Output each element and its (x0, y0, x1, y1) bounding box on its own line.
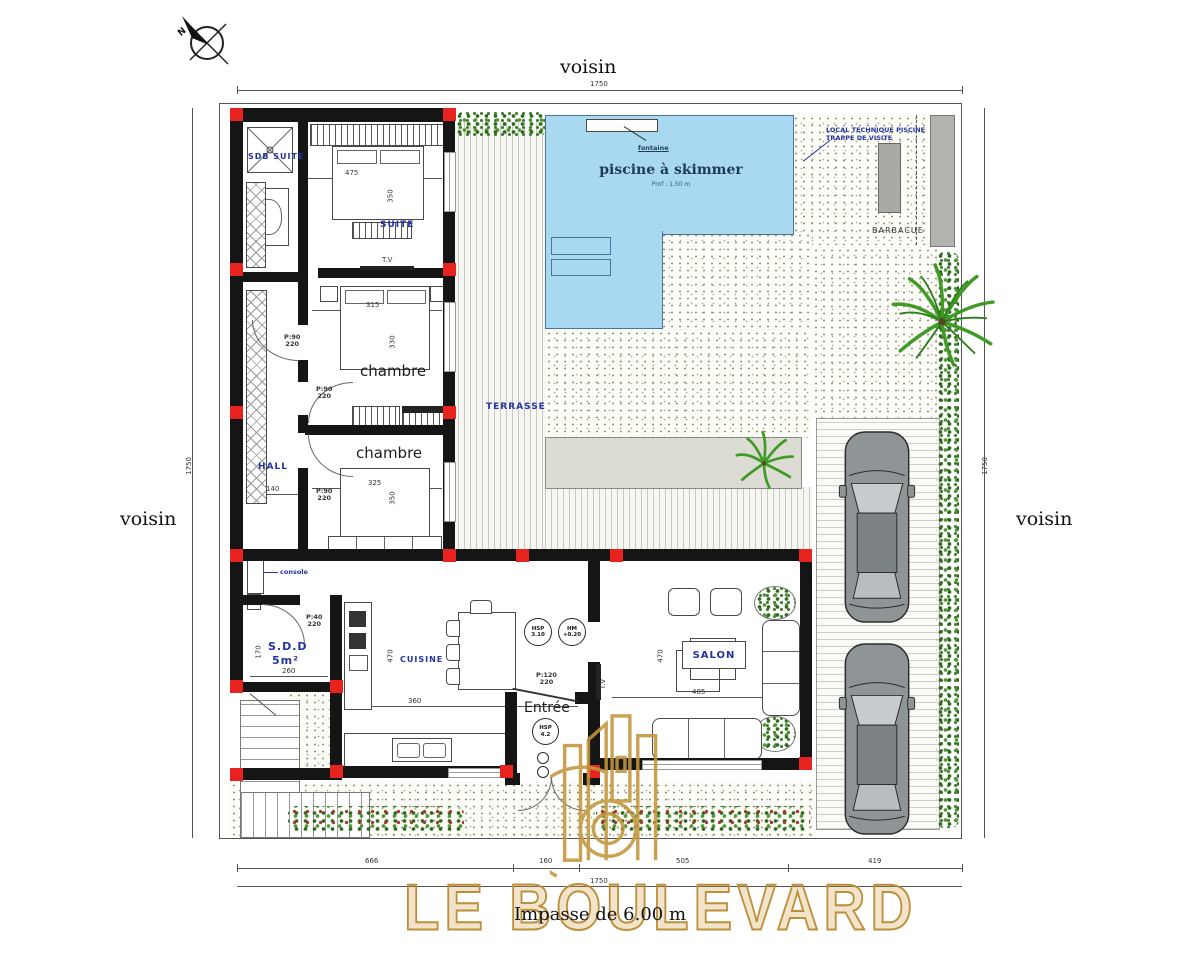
chair (446, 668, 460, 685)
barbecue-wall (930, 115, 955, 247)
console-leader (264, 572, 278, 573)
tv-label-suite: T.V (382, 256, 392, 264)
wall (230, 768, 342, 780)
dim-top-total: 1750 (590, 80, 608, 88)
shower (247, 127, 293, 173)
dim-cuisine-width: 360 (408, 697, 421, 705)
car-icon (838, 640, 916, 838)
neighbor-label-left: voisin (120, 508, 176, 530)
column (330, 765, 343, 778)
column (230, 108, 243, 121)
door-label: P:90220 (316, 386, 332, 399)
wall (588, 549, 600, 622)
column (330, 680, 343, 693)
pool-title: piscine à skimmer (566, 162, 776, 178)
sdd-label: S.D.D (268, 640, 308, 653)
level-badge: HSP3.10 (524, 618, 552, 646)
column (230, 680, 243, 693)
column (610, 549, 623, 562)
barbecue-counter (878, 143, 901, 213)
dim-ch1-width: 315 (366, 301, 379, 309)
dim-left-total: 1750 (185, 457, 193, 475)
suite-label: SUITE (380, 220, 414, 230)
compass-north-icon: N (176, 12, 234, 70)
pool-step (551, 259, 611, 276)
dim-suite-width: 475 (345, 169, 358, 177)
floor-plan-canvas: N voisin voisin voisin 1750 1750 1750 66… (0, 0, 1200, 960)
console-label: console (280, 568, 308, 576)
dim-ch2-width: 325 (368, 479, 381, 487)
compass-n-label: N (176, 26, 188, 39)
plant-pot (754, 586, 796, 620)
chambre2-label: chambre (356, 444, 422, 462)
dim-cuisine-height: 470 (387, 649, 395, 662)
fountain-label: fontaine (638, 144, 669, 152)
column (799, 549, 812, 562)
column (230, 406, 243, 419)
armchair (710, 588, 742, 616)
closet (246, 182, 266, 268)
pool-tech-label-2: TRAPPE DE VISITE (826, 134, 892, 142)
column (516, 549, 529, 562)
door-label: P:40220 (306, 614, 322, 627)
barbecue-label: BARBACUE (872, 226, 924, 235)
neighbor-label-top: voisin (560, 56, 616, 78)
dim-bottom-s4: 419 (868, 857, 881, 865)
column (443, 406, 456, 419)
level-marker-icon (537, 752, 549, 764)
level-badge: HM+0.20 (558, 618, 586, 646)
pool-fountain (586, 119, 658, 132)
hedge-top (455, 112, 545, 138)
column (443, 263, 456, 276)
level-marker-icon (537, 766, 549, 778)
brand-logo-icon (550, 710, 690, 878)
dim-sdd-height: 170 (255, 645, 263, 658)
column (799, 757, 812, 770)
chair (446, 644, 460, 661)
wall (298, 360, 308, 382)
pool-tech-label-1: LOCAL TECHNIQUE PISCINE (826, 126, 925, 134)
chair (470, 600, 492, 614)
pool-subtitle: Prof : 1.50 m (566, 181, 776, 188)
dim-salon-height: 470 (657, 649, 665, 662)
tv-unit (360, 266, 414, 270)
kitchen-sink (392, 738, 452, 762)
door-label-entree: P:120220 (536, 672, 557, 685)
chair (446, 620, 460, 637)
column (443, 549, 456, 562)
column (230, 768, 243, 781)
sdd-area-label: 5m² (272, 654, 299, 667)
chambre1-label: chambre (360, 362, 426, 380)
dim-ch1-height: 330 (389, 335, 397, 348)
dim-sdd-width: 260 (282, 667, 295, 675)
salon-label-box: SALON (682, 641, 746, 669)
sofa-right (762, 620, 800, 716)
bed (340, 286, 430, 370)
street-label: Impasse de 6.00 m (470, 904, 730, 925)
wall (243, 272, 305, 282)
armchair (668, 588, 700, 616)
neighbor-label-right: voisin (1016, 508, 1072, 530)
wall (800, 549, 812, 770)
hedge-front-left (288, 806, 464, 832)
car-icon (838, 428, 916, 626)
dim-ch2-height: 350 (389, 491, 397, 504)
column (500, 765, 513, 778)
column (230, 263, 243, 276)
cuisine-label: CUISINE (400, 655, 443, 664)
wardrobe (310, 124, 444, 146)
bed (340, 468, 430, 544)
nightstand (320, 286, 338, 302)
column (443, 108, 456, 121)
wall (298, 468, 308, 549)
salon-label: SALON (693, 650, 736, 661)
door-label: P:90220 (316, 488, 332, 501)
wall (230, 108, 455, 122)
column (230, 549, 243, 562)
hall-label: HALL (258, 462, 288, 472)
sdb-suite-label: SDB SUITE (248, 152, 304, 161)
dim-hall-width: 140 (266, 485, 279, 493)
palm-tree-icon (884, 258, 1000, 374)
dim-suite-height: 350 (387, 189, 395, 202)
terrace-label: TERRASSE (486, 402, 546, 412)
tv-label-salon: T.V (599, 679, 607, 689)
palm-plant-icon (728, 428, 800, 496)
dim-salon-width: 485 (692, 688, 705, 696)
dim-bottom-s1: 666 (365, 857, 378, 865)
dining-table (458, 612, 516, 690)
dim-line-top (237, 90, 962, 91)
dim-right-total: 1750 (981, 457, 989, 475)
bed (332, 146, 424, 220)
console-table (247, 558, 264, 594)
kitchen-tall-units (344, 602, 372, 710)
wall (230, 682, 342, 692)
pool-step (551, 237, 611, 255)
door-label: P:90220 (284, 334, 300, 347)
